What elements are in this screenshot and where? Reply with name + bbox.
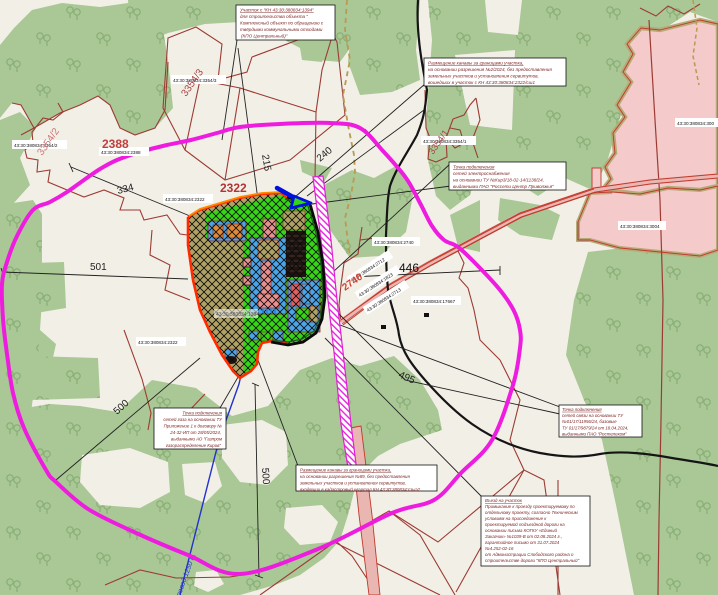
svg-text:отдельному проекту, согласно Т: отдельному проекту, согласно Техническим	[485, 510, 578, 515]
svg-text:2322: 2322	[220, 181, 247, 195]
svg-text:2388: 2388	[102, 137, 129, 151]
svg-text:гарантийное письмо от 31.07.20: гарантийное письмо от 31.07.2024	[485, 540, 560, 545]
svg-text:Участок с "КН 43:30:380834:139: Участок с "КН 43:30:380834:1394"	[240, 8, 314, 13]
svg-text:сетей газа на основании ТУ: сетей газа на основании ТУ	[163, 417, 223, 422]
svg-text:вошедших в участок с КН 43:30:: вошедших в участок с КН 43:30:380834:232…	[428, 80, 535, 85]
svg-text:твёрдыми коммунальными отходам: твёрдыми коммунальными отходами	[240, 27, 323, 32]
svg-text:43:30:380834:2740: 43:30:380834:2740	[374, 240, 414, 245]
svg-text:Точка подключения: Точка подключения	[453, 165, 495, 170]
svg-text:43:30:380834:300: 43:30:380834:300	[677, 121, 714, 126]
svg-text:Заказчик» №1039-В от 02.08.20: Заказчик» №1039-В от 02.08.2024 г.,	[485, 534, 562, 539]
svg-text:земельных участков и установле: земельных участков и установления сервит…	[427, 74, 539, 79]
svg-text:строительстве дороги "КПО Цент: строительстве дороги "КПО Центральный"	[485, 558, 580, 563]
svg-text:выданными ПАО "Ростелеком": выданными ПАО "Ростелеком"	[562, 432, 627, 437]
svg-text:Точка подключения: Точка подключения	[562, 407, 602, 412]
svg-text:сетей связи на основании ТУ: сетей связи на основании ТУ	[562, 413, 624, 418]
svg-text:основании письма КОГКУ «Единый: основании письма КОГКУ «Единый	[485, 528, 558, 533]
svg-text:43:30:380834:1394: 43:30:380834:1394	[216, 312, 259, 318]
svg-text:43:30:380834:3004: 43:30:380834:3004	[620, 224, 660, 229]
svg-text:на основании разрешения №2/202: на основании разрешения №2/2024, без пре…	[428, 67, 552, 72]
svg-text:Комплексный объект по обращени: Комплексный объект по обращению с	[240, 20, 324, 26]
svg-text:на основании ТУ №Кир3/18-02-14: на основании ТУ №Кир3/18-02-14/1138/24,	[453, 178, 544, 183]
svg-text:для строительства объекта ": для строительства объекта "	[240, 14, 308, 19]
svg-text:земельных участков и установле: земельных участков и установления сервит…	[299, 481, 406, 486]
svg-text:ТУ 01/17/9879/24 от 18.04.2024: ТУ 01/17/9879/24 от 18.04.2024,	[562, 425, 629, 430]
svg-text:(КПО Центральный)": (КПО Центральный)"	[241, 33, 288, 39]
svg-text:Въезд на участок: Въезд на участок	[485, 498, 523, 503]
svg-text:43:30:380834:2322: 43:30:380834:2322	[138, 340, 178, 345]
svg-text:входящих в кадастровый квартал: входящих в кадастровый квартал КН 43:30:…	[300, 487, 421, 492]
svg-text:446: 446	[399, 261, 419, 275]
svg-text:на основании разрешения №89, б: на основании разрешения №89, без предост…	[300, 474, 410, 479]
svg-text:Примыкание к проезду проектиру: Примыкание к проезду проектируемому по	[485, 504, 575, 509]
svg-text:газораспределение Киров": газораспределение Киров"	[166, 443, 222, 448]
svg-text:условиям на присоединение к: условиям на присоединение к	[484, 516, 547, 521]
svg-text:проектируемой подъездной дорог: проектируемой подъездной дороги на	[485, 522, 565, 527]
svg-text:Размещение канавы за границами: Размещение канавы за границами участка,	[300, 468, 391, 473]
svg-text:43:30:380834:17667: 43:30:380834:17667	[413, 299, 456, 304]
svg-text:43:30:380834:2322: 43:30:380834:2322	[165, 197, 205, 202]
svg-text:№01/17/11956/24, базовые: №01/17/11956/24, базовые	[562, 419, 617, 424]
svg-text:Размещение канавы за границами: Размещение канавы за границами участка,	[428, 61, 523, 66]
svg-text:Точка подключения: Точка подключения	[182, 411, 222, 416]
svg-text:выданными АО "Газпром: выданными АО "Газпром	[171, 437, 222, 442]
svg-text:выданными ПАО "Россети Центр П: выданными ПАО "Россети Центр Приволжья"	[453, 184, 554, 189]
svg-text:сетей электроснабжения: сетей электроснабжения	[453, 170, 510, 176]
svg-text:№4.252-02-16: №4.252-02-16	[485, 546, 514, 551]
svg-text:24-32-ИП от 28/05/2024,: 24-32-ИП от 28/05/2024,	[169, 430, 221, 435]
svg-text:от Администрации Слободского р: от Администрации Слободского района о	[485, 552, 574, 557]
svg-text:501: 501	[90, 262, 107, 273]
svg-text:Приложение 1 к договору №: Приложение 1 к договору №	[164, 424, 223, 429]
svg-text:500: 500	[259, 467, 271, 485]
